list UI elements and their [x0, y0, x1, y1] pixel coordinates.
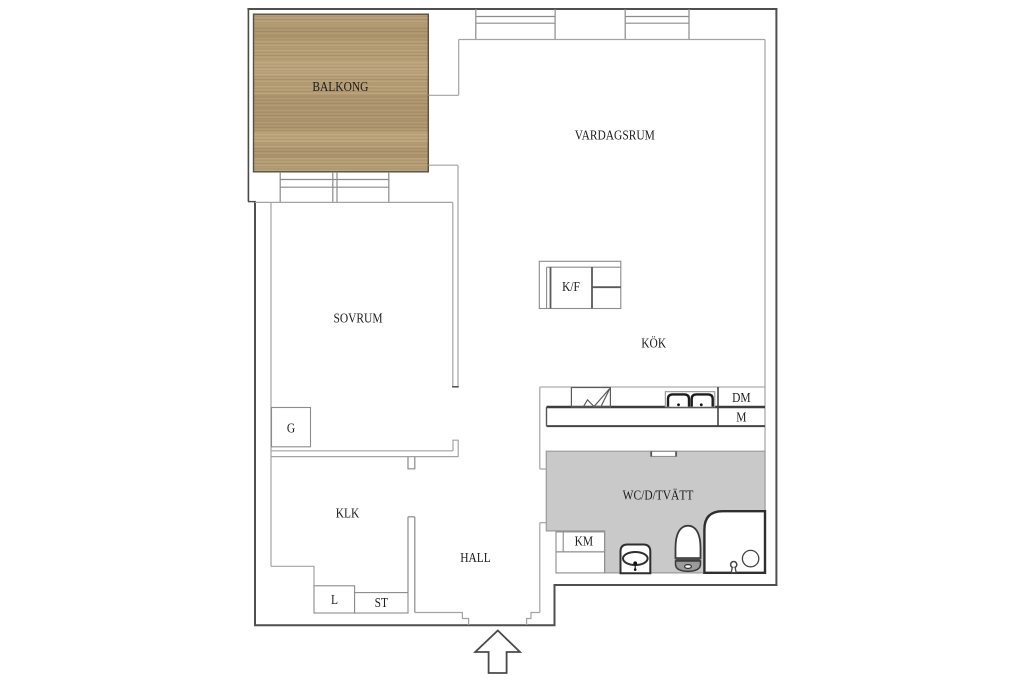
svg-text:G: G — [287, 421, 295, 436]
svg-text:L: L — [331, 592, 338, 607]
svg-text:K/F: K/F — [562, 279, 580, 294]
svg-text:KM: KM — [575, 534, 593, 549]
svg-text:SOVRUM: SOVRUM — [333, 311, 382, 326]
svg-text:HALL: HALL — [460, 550, 491, 565]
svg-text:DM: DM — [732, 390, 750, 405]
svg-text:WC/D/TVÄTT: WC/D/TVÄTT — [623, 488, 694, 503]
svg-text:VARDAGSRUM: VARDAGSRUM — [575, 127, 655, 142]
svg-text:M: M — [736, 410, 746, 425]
svg-text:BALKONG: BALKONG — [312, 79, 368, 94]
svg-text:KLK: KLK — [336, 506, 360, 521]
svg-text:ST: ST — [375, 595, 389, 610]
svg-text:KÖK: KÖK — [641, 335, 666, 350]
